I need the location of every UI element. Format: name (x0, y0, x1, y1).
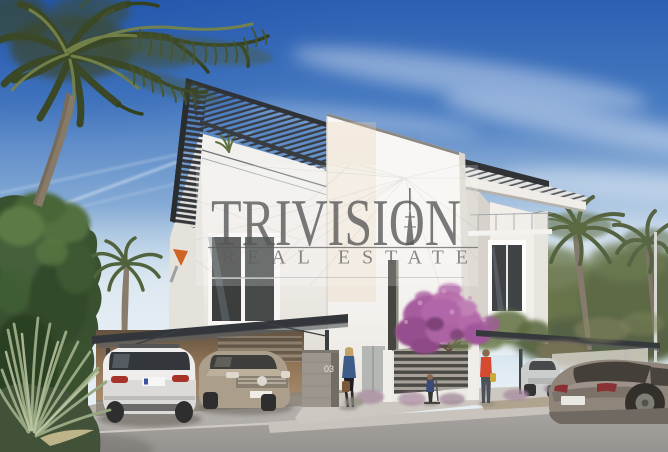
svg-text:03: 03 (324, 364, 334, 374)
svg-text:REAL ESTATE: REAL ESTATE (222, 247, 468, 269)
